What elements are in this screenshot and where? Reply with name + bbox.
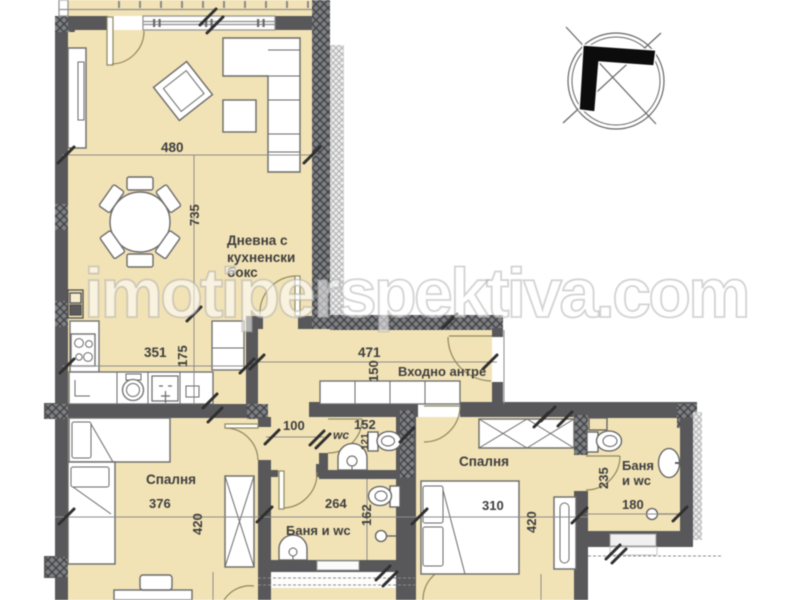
svg-text:и wc: и wc xyxy=(622,473,651,488)
svg-text:420: 420 xyxy=(524,511,539,533)
svg-text:480: 480 xyxy=(161,140,184,155)
svg-text:150: 150 xyxy=(366,360,381,382)
svg-text:Входно антре: Входно антре xyxy=(398,364,486,379)
svg-text:420: 420 xyxy=(190,513,205,535)
svg-text:Спалня: Спалня xyxy=(459,454,509,469)
svg-text:162: 162 xyxy=(359,504,374,526)
svg-text:471: 471 xyxy=(358,345,381,360)
svg-text:180: 180 xyxy=(622,497,644,512)
svg-text:Баня и wc: Баня и wc xyxy=(286,523,351,538)
svg-text:152: 152 xyxy=(354,417,376,432)
svg-text:Баня: Баня xyxy=(622,458,654,473)
svg-text:235: 235 xyxy=(596,467,611,489)
svg-text:735: 735 xyxy=(187,204,202,226)
svg-text:121: 121 xyxy=(360,433,371,450)
svg-text:imotiperspektiva.com: imotiperspektiva.com xyxy=(84,254,748,332)
svg-text:351: 351 xyxy=(144,345,167,360)
svg-text:264: 264 xyxy=(325,496,347,511)
svg-text:Дневна с: Дневна с xyxy=(227,233,288,248)
svg-text:175: 175 xyxy=(175,345,190,367)
svg-text:310: 310 xyxy=(482,498,504,513)
svg-text:Спалня: Спалня xyxy=(146,472,196,487)
svg-text:376: 376 xyxy=(149,496,171,511)
svg-text:wc: wc xyxy=(333,428,349,442)
svg-text:100: 100 xyxy=(283,418,305,433)
